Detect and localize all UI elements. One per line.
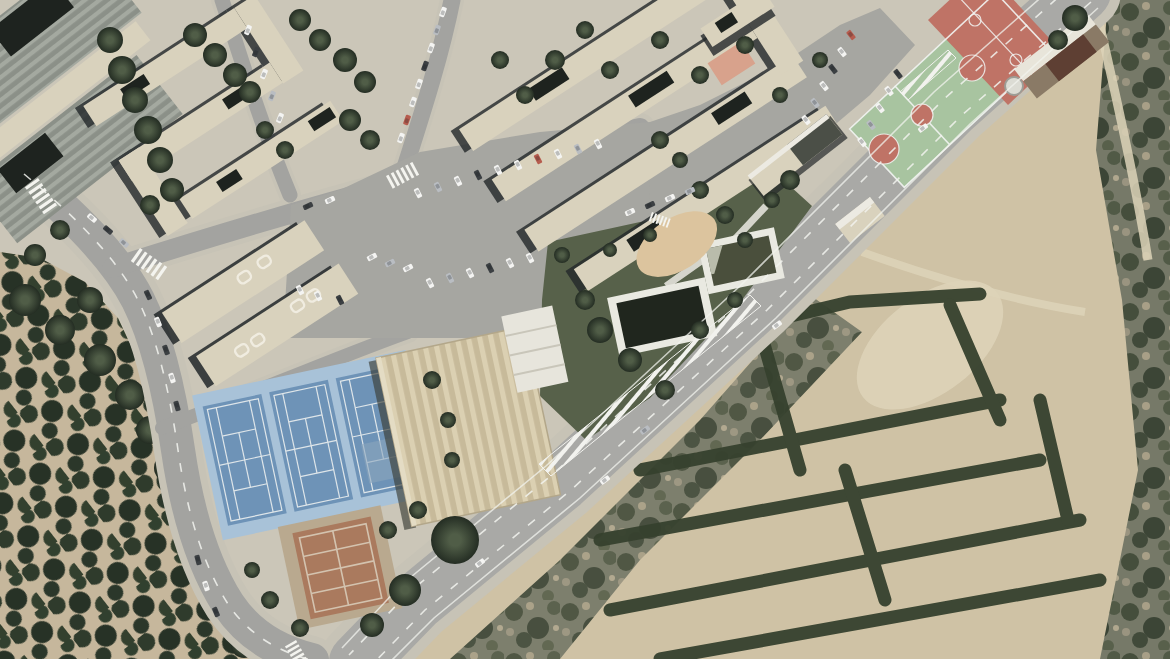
tree [289, 9, 311, 31]
tree [651, 31, 669, 49]
tree [444, 452, 460, 468]
tree [140, 195, 160, 215]
tree [576, 21, 594, 39]
tree [122, 87, 148, 113]
palm-cluster [9, 284, 41, 316]
tree [554, 247, 570, 263]
tree [389, 574, 421, 606]
tree [812, 52, 828, 68]
tree [333, 48, 357, 72]
tree [491, 51, 509, 69]
tree [261, 591, 279, 609]
tree [423, 371, 441, 389]
tree [691, 66, 709, 84]
tree [97, 27, 123, 53]
tree [764, 192, 780, 208]
satellite-image [0, 0, 1170, 659]
tree [360, 130, 380, 150]
tree [727, 292, 743, 308]
tree [643, 228, 657, 242]
palm-cluster [77, 287, 103, 313]
palm-cluster [84, 344, 116, 376]
tree [672, 152, 688, 168]
tree [291, 619, 309, 637]
tree [50, 220, 70, 240]
tree [587, 317, 613, 343]
tree [203, 43, 227, 67]
tree [239, 81, 261, 103]
tree [575, 290, 595, 310]
tree [780, 170, 800, 190]
tree [160, 178, 184, 202]
tree [354, 71, 376, 93]
tree [716, 206, 734, 224]
tree [736, 36, 754, 54]
aerial-photo-canvas [0, 0, 1170, 659]
tree [691, 321, 709, 339]
tree [409, 501, 427, 519]
tree [379, 521, 397, 539]
tree [545, 50, 565, 70]
tree [360, 613, 384, 637]
tree [655, 380, 675, 400]
tree [24, 244, 46, 266]
tree [618, 348, 642, 372]
tree [601, 61, 619, 79]
tree [1062, 5, 1088, 31]
tree [651, 131, 669, 149]
tree [1048, 30, 1068, 50]
fountain [1005, 77, 1023, 95]
tree [134, 116, 162, 144]
palm-cluster [45, 315, 75, 345]
tree [108, 56, 136, 84]
tree [339, 109, 361, 131]
tree [309, 29, 331, 51]
tree [516, 86, 534, 104]
tree [276, 141, 294, 159]
tree [772, 87, 788, 103]
tree [256, 121, 274, 139]
palm-cluster [115, 380, 145, 410]
tree [440, 412, 456, 428]
tree [244, 562, 260, 578]
tree [737, 232, 753, 248]
tree [431, 516, 479, 564]
tree [603, 243, 617, 257]
tree [183, 23, 207, 47]
tree [147, 147, 173, 173]
